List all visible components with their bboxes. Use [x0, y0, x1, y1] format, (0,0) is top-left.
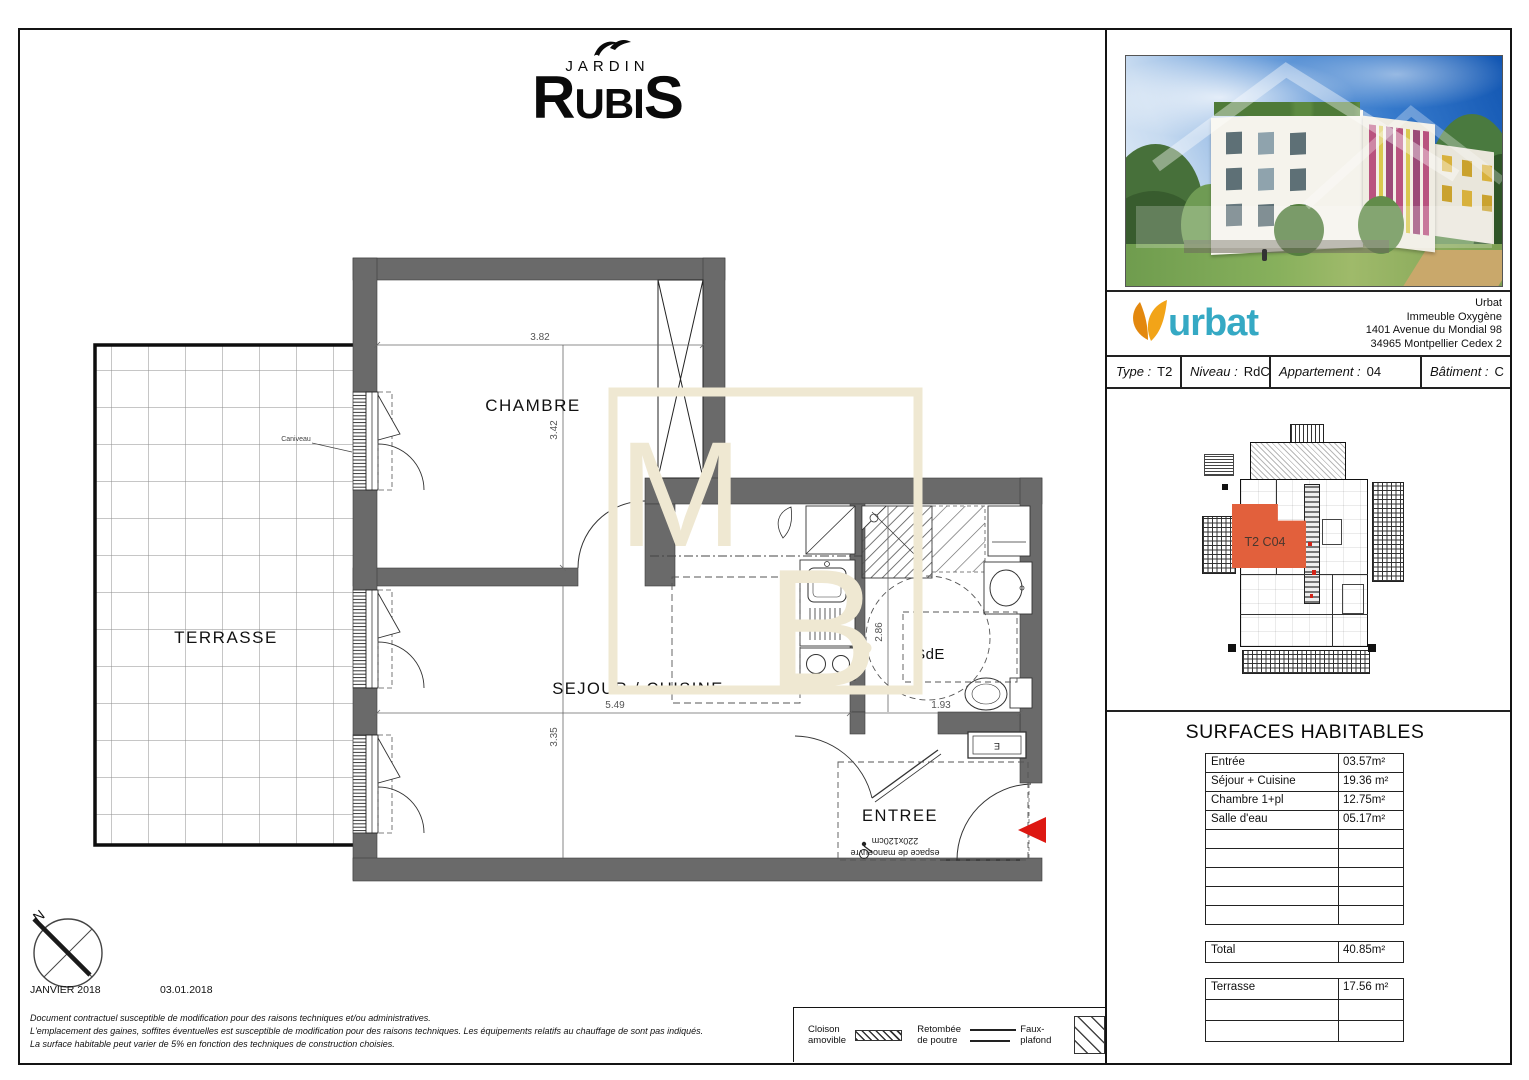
terrasse-area — [95, 345, 353, 845]
key-plan: T2 C04 — [1192, 424, 1414, 676]
legend: Cloisonamovible Retombéede poutre Faux-p… — [793, 1007, 1105, 1062]
info-niveau: Niveau :RdC — [1181, 356, 1270, 386]
table-row — [1206, 830, 1403, 849]
keyplan-balcony-right — [1372, 482, 1404, 582]
svg-text:M: M — [618, 410, 743, 578]
cloison-swatch-icon — [855, 1030, 902, 1041]
table-row: Salle d'eau05.17m² — [1206, 811, 1403, 830]
photo-watermark — [1126, 56, 1502, 286]
info-appartement: Appartement :04 — [1270, 356, 1421, 386]
table-row-total: Total40.85m² — [1206, 942, 1403, 963]
label-terrasse: TERRASSE — [174, 628, 278, 647]
retombee-swatch-icon — [970, 1026, 1007, 1044]
terrasse-table: Terrasse17.56 m² — [1205, 978, 1404, 1042]
table-row: Séjour + Cuisine19.36 m² — [1206, 773, 1403, 792]
window-sejour-1 — [353, 590, 424, 688]
entrance-arrow-icon — [1018, 817, 1046, 843]
washbasin — [984, 562, 1032, 614]
table-row — [1206, 887, 1403, 906]
panel-divider — [1105, 28, 1107, 1063]
svg-text:N: N — [30, 906, 48, 925]
dim-sejour-width: 5.49 — [605, 700, 625, 711]
table-row — [1206, 868, 1403, 887]
dim-sejour-height: 3.35 — [549, 727, 560, 747]
keyplan-corridor — [1304, 484, 1320, 604]
toilet — [965, 678, 1032, 710]
legend-retombee-label: Retombéede poutre — [917, 1024, 961, 1046]
info-batiment: Bâtiment :C — [1421, 356, 1510, 386]
faux-plafond-zone-sde — [932, 506, 985, 572]
table-row — [1206, 849, 1403, 868]
svg-text:E: E — [994, 741, 1000, 751]
watermark-monogram: M B — [613, 392, 918, 722]
washing-machine — [988, 506, 1030, 556]
table-row — [1206, 1021, 1403, 1042]
floor-plan: Caniveau — [0, 0, 1105, 1080]
urbat-leaf-dark — [1133, 302, 1148, 340]
legend-faux-label: Faux-plafond — [1020, 1024, 1065, 1046]
table-row — [1206, 906, 1403, 925]
window-chambre — [353, 392, 424, 490]
date-month: JANVIER 2018 — [30, 984, 101, 996]
table-row: Terrasse17.56 m² — [1206, 979, 1403, 1000]
svg-text:Caniveau: Caniveau — [281, 436, 311, 443]
svg-text:B: B — [766, 534, 878, 722]
building-render-photo — [1125, 55, 1503, 287]
surfaces-table: Entrée03.57m² Séjour + Cuisine19.36 m² C… — [1205, 753, 1404, 925]
keyplan-terraces — [1242, 650, 1370, 674]
label-chambre: CHAMBRE — [485, 396, 581, 415]
svg-text:220x120cm: 220x120cm — [872, 836, 919, 846]
sde-door — [795, 736, 941, 802]
faux-plafond-swatch-icon — [1074, 1016, 1105, 1054]
info-type: Type :T2 — [1107, 356, 1181, 386]
svg-text:urbat: urbat — [1168, 302, 1259, 344]
total-table: Total40.85m² — [1205, 941, 1404, 963]
legend-cloison-label: Cloisonamovible — [808, 1024, 846, 1046]
dim-sde-width: 1.93 — [931, 700, 951, 711]
dim-chambre-width: 3.82 — [530, 332, 550, 343]
table-row — [1206, 1000, 1403, 1021]
date-exact: 03.01.2018 — [160, 984, 213, 996]
dim-chambre-height: 3.42 — [549, 420, 560, 440]
surfaces-title: SURFACES HABITABLES — [1160, 721, 1450, 744]
label-entree: ENTREE — [862, 807, 938, 825]
north-compass-icon: N — [30, 906, 102, 987]
table-row: Entrée03.57m² — [1206, 754, 1403, 773]
electrical-panel: E — [968, 732, 1026, 758]
urbat-leaf-light — [1148, 300, 1167, 341]
table-row: Chambre 1+pl12.75m² — [1206, 792, 1403, 811]
entry-door — [940, 784, 1031, 860]
plan-sheet: JARDIN RUBIS — [0, 0, 1529, 1080]
legal-text: Document contractuel susceptible de modi… — [30, 1012, 703, 1051]
keyplan-balcony-left — [1202, 516, 1236, 574]
unit-info-row: Type :T2 Niveau :RdC Appartement :04 Bât… — [1107, 356, 1510, 386]
company-address: Urbat Immeuble Oxygène 1401 Avenue du Mo… — [1260, 297, 1502, 351]
window-sejour-2 — [353, 735, 424, 833]
